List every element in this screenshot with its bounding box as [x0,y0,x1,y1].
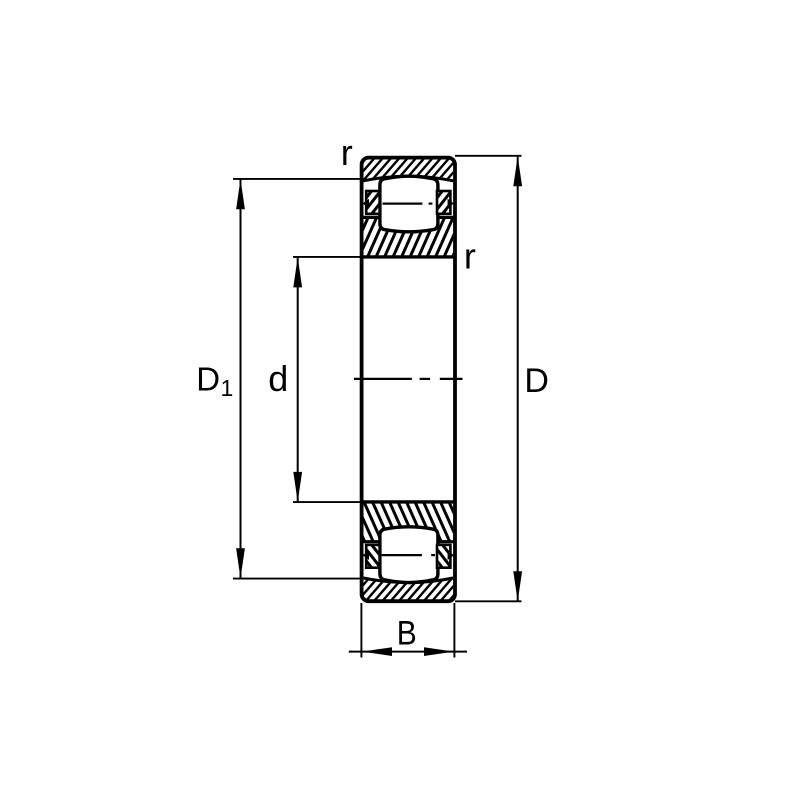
svg-text:r: r [341,132,353,173]
svg-text:D: D [524,362,549,400]
svg-text:B: B [397,614,417,652]
svg-text:1: 1 [221,375,234,401]
svg-text:d: d [268,358,288,399]
svg-text:D: D [196,361,220,398]
svg-text:r: r [464,235,476,276]
